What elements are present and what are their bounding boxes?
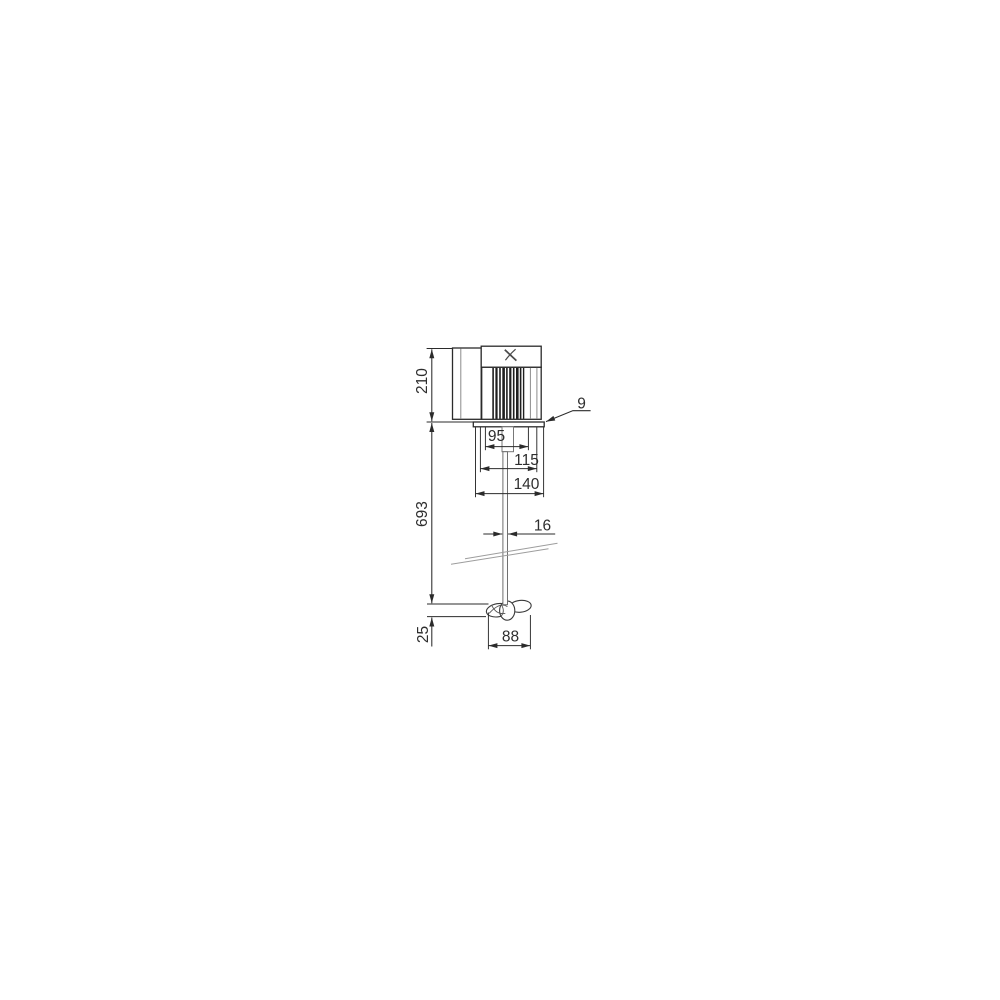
motor-assembly [453,346,542,419]
dim-label-motor-height: 210 [414,368,431,394]
dim-label-shaft-diameter: 16 [534,518,551,535]
technical-drawing-page: 210 693 25 9 95 [0,0,1000,1000]
dim-label-shaft-length: 693 [414,501,431,527]
dim-label-propeller-diameter: 88 [502,629,519,646]
dim-label-bolt-circle-width: 115 [514,452,539,469]
propeller [485,599,531,620]
dimension-motor-height: 210 [414,349,453,422]
dimension-shaft-length: 693 [414,422,489,604]
mounting-flange-plate [473,422,544,427]
dimension-shaft-diameter: 16 [483,518,555,535]
dimension-propeller-height: 25 [415,617,486,647]
technical-drawing-canvas: 210 693 25 9 95 [0,0,1000,1000]
dim-label-flange-width: 140 [514,476,540,493]
dimension-flange-thickness: 9 [546,396,591,422]
dim-label-flange-pilot-width: 95 [488,428,505,445]
dim-label-flange-thickness: 9 [577,396,586,413]
motor-body [482,367,542,419]
mixer-shaft [503,452,508,605]
dim-label-propeller-height: 25 [415,626,432,643]
terminal-box [453,348,482,419]
